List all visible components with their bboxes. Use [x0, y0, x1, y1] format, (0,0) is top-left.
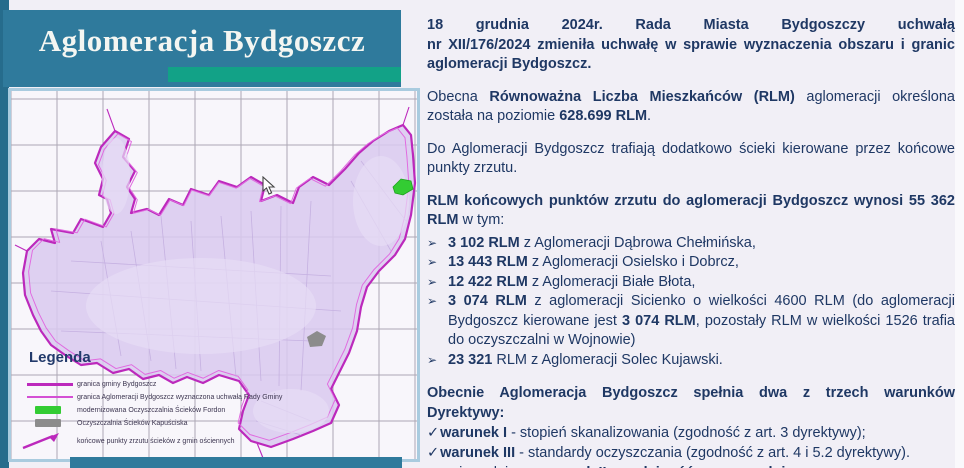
bullet-text: RLM z Aglomeracji Solec Kujawski. — [492, 352, 722, 368]
resolution-rest: nr XII/176/2024 zmieniła uchwałę w spraw… — [427, 36, 955, 75]
legend-title: Legenda — [29, 349, 319, 366]
bullet-value: 3 074 RLM — [448, 293, 527, 309]
discharge-total-value: RLM końcowych punktów zrzutu do aglomera… — [427, 193, 955, 229]
bullet-sicienko: ➢3 074 RLM z aglomeracji Sicienko o wiel… — [427, 292, 955, 351]
check-icon: ✓ — [427, 425, 439, 441]
bullet-value: 3 102 RLM — [448, 235, 520, 251]
bullet-dabrowa: ➢3 102 RLM z Aglomeracji Dąbrowa Chełmiń… — [427, 234, 955, 254]
gray-swatch — [19, 418, 77, 428]
bullet-value: 13 443 RLM — [448, 254, 528, 270]
right-edge-strip — [955, 0, 964, 468]
legend-item-fordon-plant: modernizowana Oczyszczalnia Ścieków Ford… — [19, 405, 319, 415]
legend-item-kapusciska-plant: Oczyszczalnia Ścieków Kapuściska — [19, 418, 319, 428]
thin-line-swatch — [19, 392, 77, 402]
condition-1: ✓warunek I - stopień skanalizowania (zgo… — [427, 423, 955, 443]
paragraph-discharge-total: RLM końcowych punktów zrzutu do aglomera… — [427, 192, 955, 231]
legend-label: Oczyszczalnia Ścieków Kapuściska — [77, 420, 188, 427]
bullet-arrow-icon: ➢ — [427, 234, 437, 254]
bullet-value: 3 074 RLM — [622, 313, 696, 329]
bullet-arrow-icon: ➢ — [429, 463, 439, 468]
condition-name: warunek III — [440, 445, 515, 461]
text-run: w tym: — [458, 212, 504, 228]
condition-text: - stopień skanalizowania (zgodność z art… — [507, 425, 866, 441]
legend-item-discharge-points: końcowe punkty zrzutu ścieków z gmin ośc… — [19, 431, 319, 451]
body-text-column: 18 grudnia 2024r. Rada Miasta Bydgoszczy… — [427, 16, 955, 468]
bullet-arrow-icon: ➢ — [427, 292, 437, 312]
condition-name: warunek I — [440, 425, 507, 441]
condition-text: - standardy oczyszczania (zgodność z art… — [515, 445, 910, 461]
bullet-arrow-icon: ➢ — [427, 273, 437, 293]
condition-2-unmet: ➢niespełniony warunek II - wydajność ocz… — [427, 463, 955, 468]
paragraph-discharge-intro: Do Aglomeracji Bydgoszcz trafiają dodatk… — [427, 140, 955, 179]
slide-title: Aglomeracja Bydgoszcz — [3, 10, 401, 59]
paragraph-rlm-total: Obecna Równoważna Liczba Mieszkańców (RL… — [427, 88, 955, 127]
mouse-cursor-icon — [262, 176, 276, 196]
resolution-line1: 18 grudnia 2024r. Rada Miasta Bydgoszczy… — [427, 16, 955, 36]
legend-label: modernizowana Oczyszczalnia Ścieków Ford… — [77, 407, 225, 414]
directive-heading: Obecnie Aglomeracja Bydgoszcz spełnia dw… — [427, 383, 955, 423]
paragraph-resolution: 18 grudnia 2024r. Rada Miasta Bydgoszczy… — [427, 16, 955, 75]
bullet-biale-blota: ➢12 422 RLM z Aglomeracji Białe Błota, — [427, 273, 955, 293]
discharge-bullet-list: ➢3 102 RLM z Aglomeracji Dąbrowa Chełmiń… — [427, 234, 955, 371]
bullet-text: z Aglomeracji Dąbrowa Chełmińska, — [520, 235, 756, 251]
bullet-value: 12 422 RLM — [448, 274, 528, 290]
bullet-osielsko: ➢13 443 RLM z Aglomeracji Osielsko i Dob… — [427, 253, 955, 273]
bottom-accent-bar — [70, 457, 402, 468]
legend-item-aglomeracja-border: granica Aglomeracji Bydgoszcz wyznaczona… — [19, 392, 319, 402]
check-icon: ✓ — [427, 445, 439, 461]
map-legend: Legenda granica gminy Bydgoszcz granica … — [19, 349, 319, 454]
text-run: Obecna — [427, 89, 489, 105]
legend-label: granica Aglomeracji Bydgoszcz wyznaczona… — [77, 394, 282, 401]
title-accent-bar — [168, 67, 401, 82]
green-swatch — [19, 405, 77, 415]
condition-3: ✓warunek III - standardy oczyszczania (z… — [427, 443, 955, 463]
legend-item-gmina-border: granica gminy Bydgoszcz — [19, 379, 319, 389]
bullet-arrow-icon: ➢ — [427, 351, 437, 371]
bullet-value: 23 321 — [448, 352, 492, 368]
thick-line-swatch — [19, 379, 77, 389]
bullet-solec: ➢23 321 RLM z Aglomeracji Solec Kujawski… — [427, 351, 955, 371]
bullet-text: z Aglomeracji Osielsko i Dobrcz, — [528, 254, 739, 270]
legend-label: końcowe punkty zrzutu ścieków z gmin ośc… — [77, 438, 235, 445]
bullet-arrow-icon: ➢ — [427, 253, 437, 273]
rlm-value: 628.699 RLM — [559, 108, 647, 124]
arrow-icon — [19, 431, 77, 451]
legend-label: granica gminy Bydgoszcz — [77, 381, 156, 388]
rlm-term: Równoważna Liczba Mieszkańców (RLM) — [489, 89, 794, 105]
presentation-slide: Aglomeracja Bydgoszcz — [0, 0, 964, 468]
bullet-text: z Aglomeracji Białe Błota, — [528, 274, 696, 290]
text-run: . — [647, 108, 651, 124]
map-panel: Legenda granica gminy Bydgoszcz granica … — [8, 88, 420, 462]
